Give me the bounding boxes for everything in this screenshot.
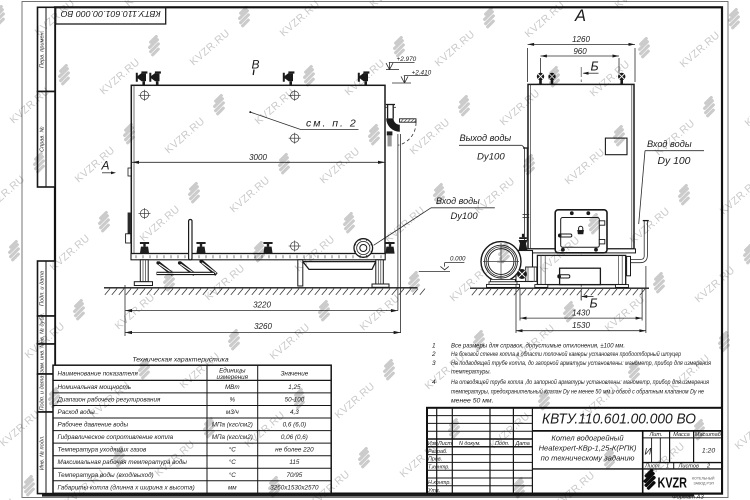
svg-text:Листов: Листов [678, 464, 699, 470]
svg-text:3260: 3260 [254, 322, 272, 331]
svg-text:КВТУ.110.601.00.000 ВО: КВТУ.110.601.00.000 ВО [60, 9, 160, 19]
svg-text:3: 3 [432, 360, 436, 367]
svg-text:Единицы: Единицы [219, 366, 246, 374]
svg-text:температуры, предохранительный: температуры, предохранительный клапан Dy… [451, 388, 704, 396]
svg-text:КОТЕЛЬНЫЙ: КОТЕЛЬНЫЙ [692, 477, 715, 481]
svg-text:70/95: 70/95 [287, 472, 303, 479]
svg-text:Формат А3: Формат А3 [672, 494, 704, 500]
svg-text:На подводящей трубе котла, д: На подводящей трубе котла, до запорной а… [451, 359, 711, 367]
svg-text:А: А [574, 7, 586, 25]
svg-text:Инв. № подл.: Инв. № подл. [40, 435, 46, 470]
svg-text:МВт: МВт [225, 384, 240, 391]
svg-text:В: В [252, 58, 260, 72]
svg-text:менее 50 мм.: менее 50 мм. [451, 398, 494, 405]
svg-text:Dy 100: Dy 100 [658, 156, 691, 167]
svg-text:+2.970: +2.970 [397, 56, 417, 63]
svg-text:Масса: Масса [673, 432, 690, 438]
svg-text:960: 960 [573, 47, 587, 56]
svg-text:0,06 (0,6): 0,06 (0,6) [281, 434, 308, 441]
svg-text:КВТУ.110.601.00.000 ВО: КВТУ.110.601.00.000 ВО [542, 411, 696, 428]
svg-text:Dy100: Dy100 [477, 151, 505, 162]
svg-text:Значение: Значение [281, 371, 309, 378]
svg-text:Котел водогрейный: Котел водогрейный [551, 434, 624, 443]
svg-text:мм: мм [228, 484, 237, 491]
svg-text:Наименование показателя: Наименование показателя [58, 371, 139, 378]
svg-text:°С: °С [229, 458, 237, 466]
svg-text:1260: 1260 [572, 35, 590, 44]
svg-text:115: 115 [289, 459, 300, 466]
svg-text:Н.контр.: Н.контр. [428, 480, 451, 486]
svg-text:Рабочее давление воды: Рабочее давление воды [58, 421, 129, 429]
svg-text:2: 2 [431, 351, 436, 358]
svg-text:1: 1 [432, 343, 436, 350]
svg-text:Выход воды: Выход воды [460, 133, 512, 143]
svg-text:температуры.: температуры. [451, 369, 491, 376]
svg-text:°С: °С [229, 446, 237, 454]
svg-text:°С: °С [229, 471, 237, 479]
svg-text:На боковой стенке котла в обла: На боковой стенке котла в области топочн… [451, 350, 681, 358]
svg-text:1:20: 1:20 [702, 448, 715, 455]
svg-text:Гидравлическое сопротивление к: Гидравлическое сопротивление котла [58, 433, 174, 441]
svg-text:Б: Б [591, 60, 599, 74]
svg-text:см. п. 2: см. п. 2 [306, 118, 358, 130]
svg-text:Температура уходящих газов: Температура уходящих газов [58, 446, 147, 454]
svg-text:Справ. №: Справ. № [40, 126, 46, 151]
svg-text:0.000: 0.000 [450, 255, 466, 262]
svg-text:Dy100: Dy100 [451, 210, 479, 221]
svg-text:Подп. и дата: Подп. и дата [40, 375, 46, 410]
svg-text:4,3: 4,3 [290, 409, 299, 416]
svg-text:%: % [229, 397, 235, 404]
svg-text:И: И [645, 447, 652, 458]
svg-text:3220: 3220 [253, 300, 271, 309]
svg-text:ЗАВОД РЭП: ЗАВОД РЭП [694, 482, 715, 486]
svg-text:не более 220: не более 220 [275, 446, 314, 454]
svg-text:1530: 1530 [572, 321, 590, 330]
svg-text:Дата: Дата [515, 441, 530, 447]
svg-text:измерения: измерения [217, 374, 249, 381]
svg-text:по техническому заданию: по техническому заданию [541, 454, 635, 463]
svg-text:Подп. и дата: Подп. и дата [40, 271, 46, 306]
svg-text:KVZR: KVZR [658, 475, 688, 491]
svg-text:Т.контр.: Т.контр. [428, 464, 450, 470]
svg-text:м3/ч: м3/ч [226, 409, 240, 416]
svg-text:3000: 3000 [249, 153, 267, 162]
svg-text:Heatexpert-КВр-1,25-К(РПК): Heatexpert-КВр-1,25-К(РПК) [539, 444, 637, 453]
svg-text:МПа (кгс/см2): МПа (кгс/см2) [212, 422, 253, 429]
svg-text:Лит.: Лит. [648, 432, 662, 438]
svg-text:N докум.: N докум. [459, 441, 481, 447]
svg-text:Утв.: Утв. [427, 488, 440, 494]
svg-text:Б: Б [590, 297, 598, 311]
svg-text:0,6 (6,0): 0,6 (6,0) [283, 422, 306, 429]
